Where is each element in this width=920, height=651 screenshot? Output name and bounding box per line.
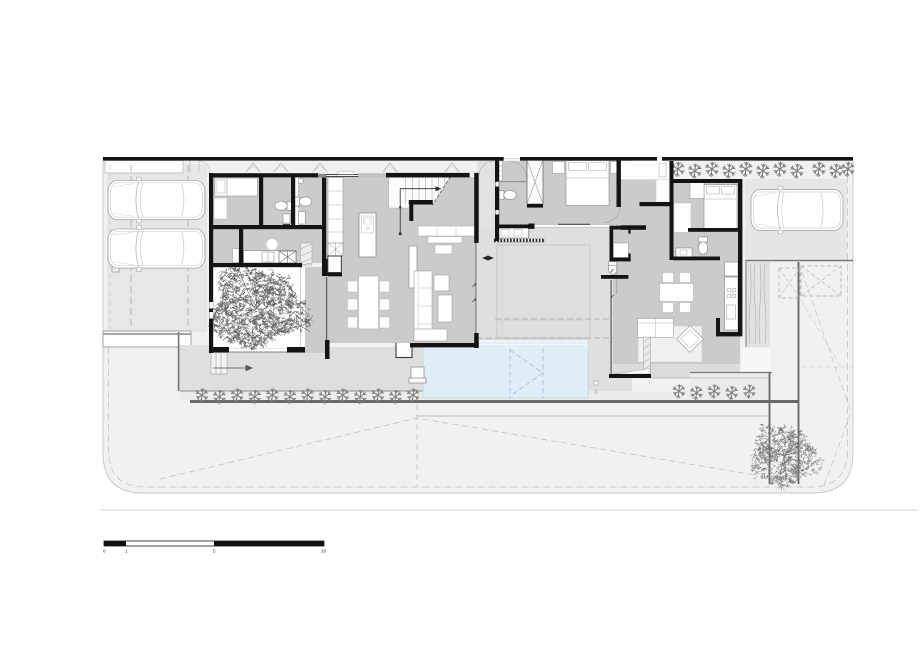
- svg-text:10: 10: [321, 549, 327, 554]
